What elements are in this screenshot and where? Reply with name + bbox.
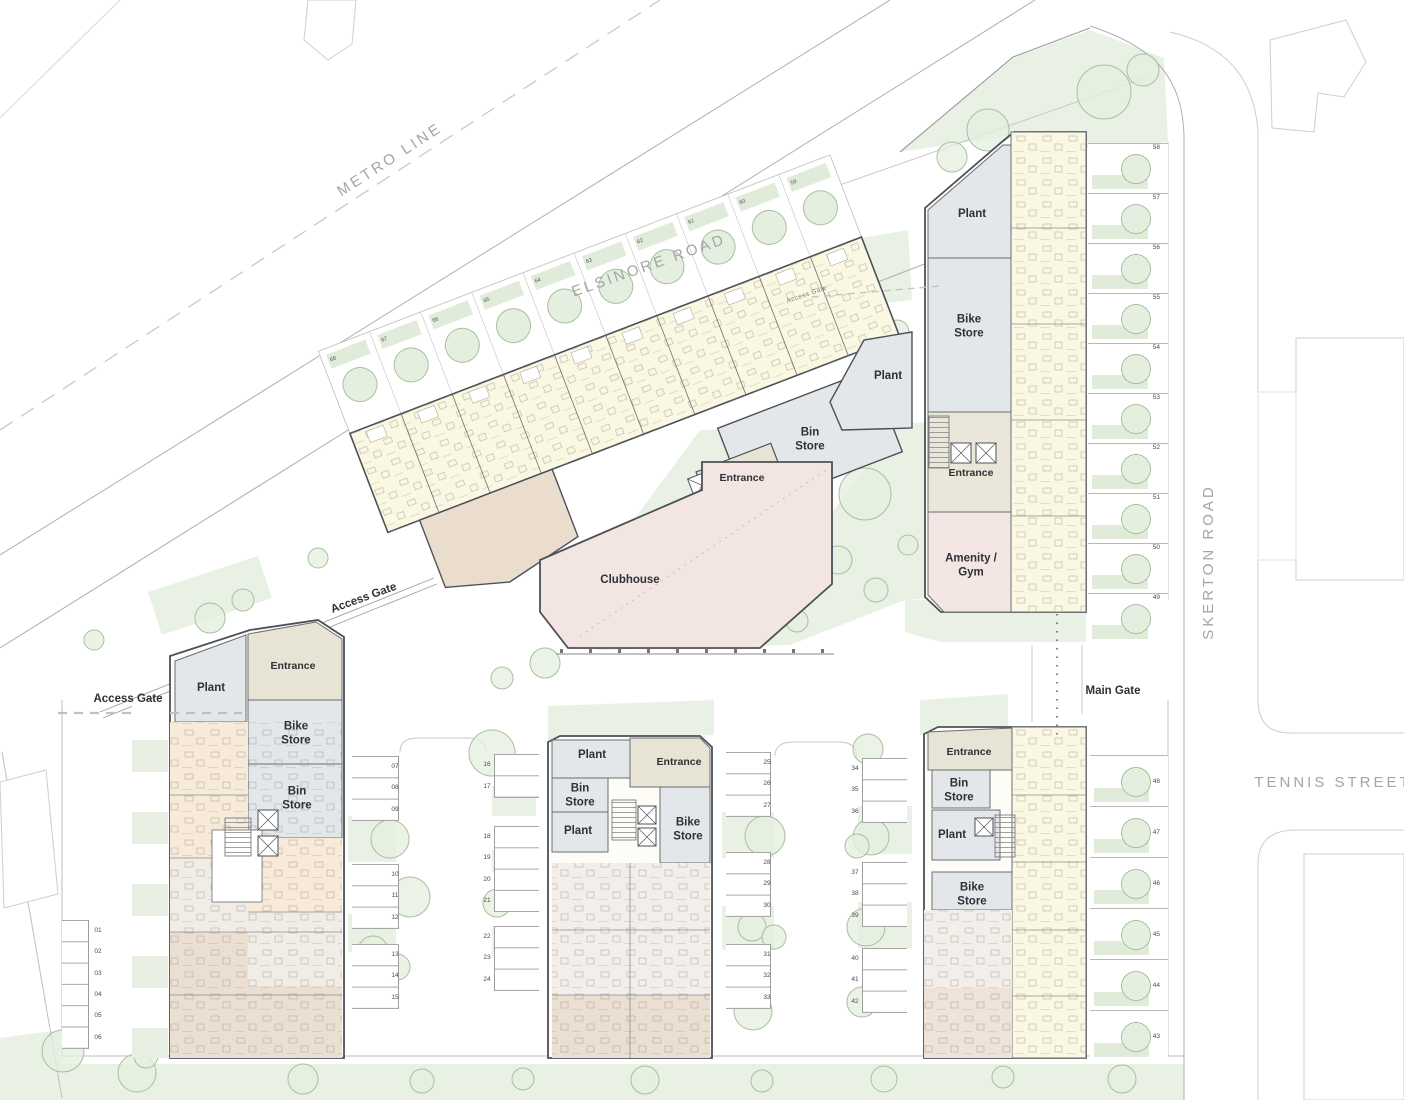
parking-space-number: 14	[388, 965, 402, 986]
garden-number: 48	[1140, 778, 1160, 829]
parking-space-number: 32	[760, 965, 774, 986]
parking-space-number: 20	[480, 869, 494, 890]
parking-bays	[62, 920, 89, 1049]
parking-space-number: 29	[760, 873, 774, 894]
parking-space-number: 17	[480, 776, 494, 798]
parking-space-number: 19	[480, 847, 494, 868]
central-plant-a-label: Plant	[578, 749, 606, 763]
parking-bays	[494, 754, 539, 798]
ne-bike-store-label: Bike Store	[951, 313, 987, 340]
central-entrance-label: Entrance	[657, 756, 702, 768]
garden-number: 51	[1140, 494, 1160, 544]
parking-space-number: 22	[480, 926, 494, 947]
parking-bays	[494, 926, 539, 991]
site-plan: 68 67 66 65 64 63 62 61 60 59	[0, 0, 1404, 1100]
terrace-plant-label: Plant	[874, 370, 902, 384]
parking-space-number: 39	[848, 905, 862, 926]
parking-space-number: 08	[388, 777, 402, 798]
garden-number: 54	[1140, 344, 1160, 394]
terrace-bin-store-label: Bin Store	[792, 426, 828, 453]
garden-number: 45	[1140, 931, 1160, 982]
parking-space-number: 40	[848, 948, 862, 969]
garden-number: 49	[1140, 594, 1160, 644]
parking-space-number: 37	[848, 862, 862, 883]
garden-number: 44	[1140, 982, 1160, 1033]
parking-space-number: 24	[480, 969, 494, 990]
parking-space-number: 31	[760, 944, 774, 965]
garden-number: 43	[1140, 1033, 1160, 1084]
parking-space-number: 42	[848, 991, 862, 1012]
parking-space-number: 18	[480, 826, 494, 847]
parking-space-number: 09	[388, 799, 402, 820]
site-plan-drawing: 68 67 66 65 64 63 62 61 60 59	[0, 0, 1404, 1100]
parking-space-number: 25	[760, 752, 774, 773]
north-east-block	[925, 132, 1086, 612]
parking-numbers: 101112	[388, 864, 402, 928]
se-bin-store-label: Bin Store	[942, 777, 976, 804]
garden-number: 52	[1140, 444, 1160, 494]
parking-space-number: 13	[388, 944, 402, 965]
garden-number: 46	[1140, 880, 1160, 931]
parking-space-number: 02	[90, 941, 106, 962]
parking-numbers-west-lane: 010203040506	[90, 920, 106, 1048]
parking-space-number: 38	[848, 883, 862, 904]
parking-bays	[862, 862, 907, 927]
parking-space-number: 33	[760, 987, 774, 1008]
parking-numbers: 282930	[760, 852, 774, 916]
central-bike-store-label: Bike Store	[671, 816, 705, 843]
access-gate-label-west: Access Gate	[93, 693, 162, 707]
se-plant-label: Plant	[938, 829, 966, 843]
parking-space-number: 23	[480, 947, 494, 968]
ne-plant-label: Plant	[958, 208, 986, 222]
parking-space-number: 11	[388, 885, 402, 906]
parking-numbers: 373839	[848, 862, 862, 926]
parking-space-number: 07	[388, 756, 402, 777]
garden-number: 56	[1140, 244, 1160, 294]
parking-numbers: 343536	[848, 758, 862, 822]
central-stair	[612, 800, 636, 840]
parking-space-number: 12	[388, 907, 402, 928]
parking-numbers: 070809	[388, 756, 402, 820]
central-plant-b-label: Plant	[564, 825, 592, 839]
parking-numbers: 404142	[848, 948, 862, 1012]
parking-space-number: 04	[90, 984, 106, 1005]
terrace-entrance-label: Entrance	[720, 472, 765, 484]
parking-space-number: 05	[90, 1005, 106, 1026]
parking-space-number: 41	[848, 969, 862, 990]
west-plant-room	[175, 635, 246, 722]
parking-bays	[494, 826, 539, 912]
street-label-skerton-road: SKERTON ROAD	[1200, 484, 1218, 639]
clubhouse-label: Clubhouse	[600, 574, 659, 588]
east-garden-numbers: 58575655545352515049	[1140, 144, 1160, 644]
ne-entrance-label: Entrance	[949, 467, 994, 479]
se-entrance-label: Entrance	[947, 746, 992, 758]
parking-space-number: 16	[480, 754, 494, 776]
central-bin-store-label: Bin Store	[563, 782, 597, 809]
parking-numbers: 1617	[480, 754, 494, 797]
parking-space-number: 03	[90, 963, 106, 984]
garden-number: 58	[1140, 144, 1160, 194]
parking-bays	[862, 948, 907, 1013]
street-label-tennis-street: TENNIS STREET	[1254, 774, 1404, 792]
main-gate-label: Main Gate	[1086, 685, 1141, 699]
parking-space-number: 26	[760, 773, 774, 794]
parking-space-number: 34	[848, 758, 862, 779]
garden-number: 57	[1140, 194, 1160, 244]
west-bin-store-label: Bin Store	[279, 785, 315, 812]
garden-number: 53	[1140, 394, 1160, 444]
parking-space-number: 21	[480, 890, 494, 911]
parking-space-number: 06	[90, 1027, 106, 1048]
ne-stair	[929, 416, 949, 468]
west-bike-store-label: Bike Store	[278, 720, 314, 747]
parking-space-number: 15	[388, 987, 402, 1008]
se-bike-store-label: Bike Store	[955, 881, 989, 908]
parking-numbers: 18192021	[480, 826, 494, 911]
garden-number: 47	[1140, 829, 1160, 880]
parking-space-number: 30	[760, 895, 774, 916]
se-stair	[995, 815, 1015, 857]
parking-space-number: 36	[848, 801, 862, 822]
parking-space-number: 28	[760, 852, 774, 873]
garden-number: 55	[1140, 294, 1160, 344]
parking-space-number: 27	[760, 795, 774, 816]
parking-space-number: 01	[90, 920, 106, 941]
parking-space-number: 35	[848, 779, 862, 800]
ne-amenity-gym-label: Amenity / Gym	[938, 552, 1004, 579]
parking-space-number: 10	[388, 864, 402, 885]
garden-number: 50	[1140, 544, 1160, 594]
west-garden-strip	[132, 700, 168, 1058]
parking-bays	[862, 758, 907, 823]
parking-numbers: 222324	[480, 926, 494, 990]
south-east-garden-numbers: 484746454443	[1140, 778, 1160, 1084]
west-entrance-label: Entrance	[271, 660, 316, 672]
west-plant-label: Plant	[197, 682, 225, 696]
parking-numbers: 131415	[388, 944, 402, 1008]
parking-numbers: 252627	[760, 752, 774, 816]
parking-numbers: 313233	[760, 944, 774, 1008]
